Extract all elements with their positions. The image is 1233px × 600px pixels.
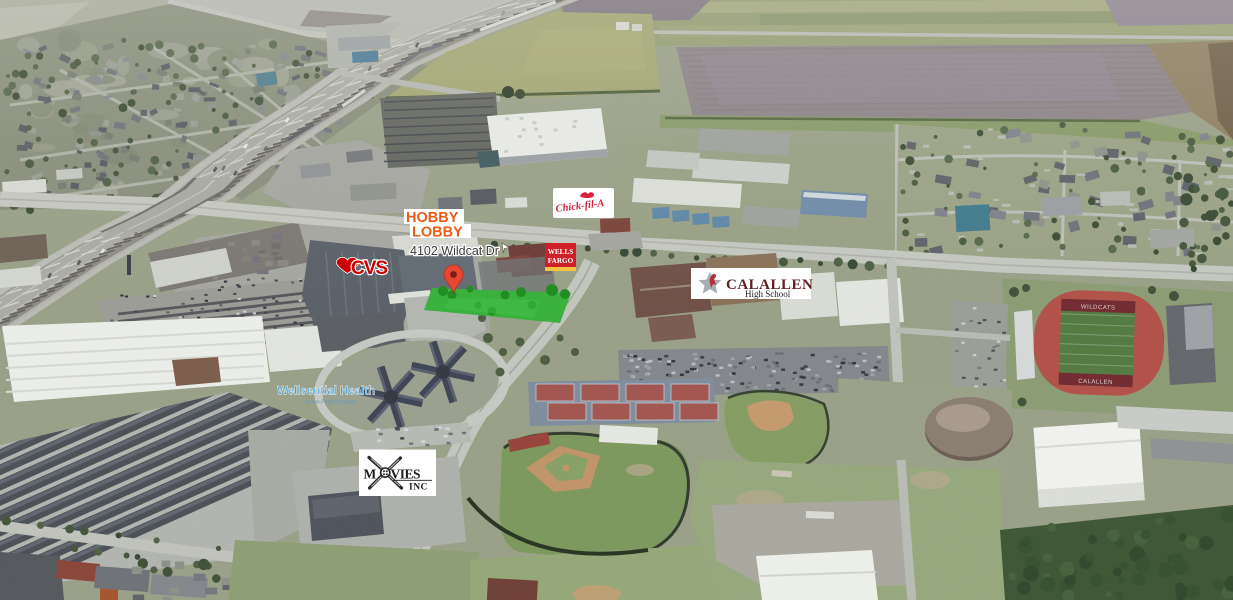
svg-text:4102 Wildcat Dr: 4102 Wildcat Dr — [410, 244, 499, 258]
svg-text:INC: INC — [409, 483, 428, 493]
svg-text:VIES: VIES — [391, 467, 421, 482]
svg-text:Wellsential Health: Wellsential Health — [277, 386, 375, 398]
svg-text:A Non-Profit Company: A Non-Profit Company — [306, 400, 356, 406]
svg-text:WELLS: WELLS — [548, 248, 574, 256]
svg-text:LOBBY: LOBBY — [412, 225, 463, 241]
svg-text:M: M — [364, 467, 377, 482]
svg-text:CVS: CVS — [351, 258, 387, 279]
svg-text:High School: High School — [745, 289, 791, 299]
svg-text:FARGO: FARGO — [548, 257, 574, 265]
